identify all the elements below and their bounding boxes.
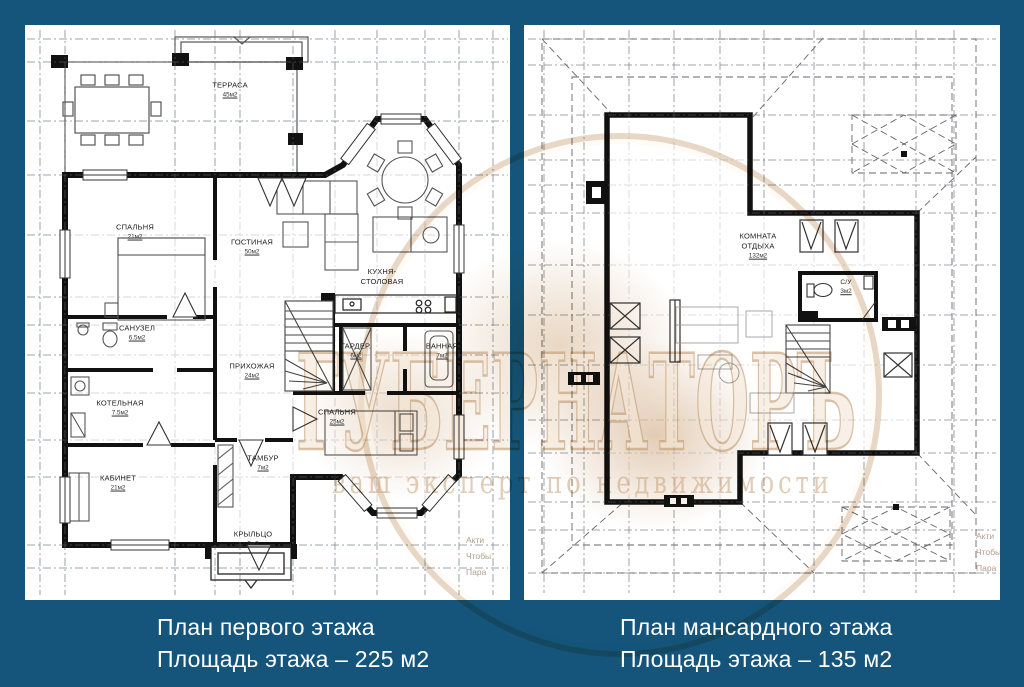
first-floor-plan-drawing xyxy=(25,25,510,600)
attic-staircase xyxy=(786,325,830,393)
first-floor-plan-panel: ТЕРРАСА45м2 СПАЛЬНЯ21м2 ГОСТИНАЯ50м2 КУХ… xyxy=(25,25,510,600)
terrace-columns xyxy=(51,53,303,145)
room-label-bathroom: ВАННАЯ7м2 xyxy=(426,342,458,361)
staircase xyxy=(285,301,333,391)
room-label-hallway: ПРИХОЖАЯ24м2 xyxy=(229,362,274,381)
room-label-wc: САНУЗЕЛ6.5м2 xyxy=(119,324,155,343)
attic-floor-plan-drawing xyxy=(524,25,1000,600)
room-label-attic-wc: С/У3м2 xyxy=(840,279,851,297)
corner-note: Акти Чтобы Пара xyxy=(466,532,491,580)
room-label-boiler-room: КОТЕЛЬНАЯ7.5м2 xyxy=(96,399,143,418)
caption-first-floor: План первого этажа Площадь этажа – 225 м… xyxy=(157,611,429,675)
attic-floor-plan-panel: КОМНАТА ОТДЫХА132м2 С/У3м2 Акти Чтобы Па… xyxy=(524,25,1000,600)
room-label-wardrobe: ГАРДЕР.6м2 xyxy=(341,342,371,361)
caption-first-floor-area: Площадь этажа – 225 м2 xyxy=(157,643,429,675)
page-background: { "colors": { "background": "#15557C", "… xyxy=(0,0,1024,687)
room-label-office: КАБИНЕТ21м2 xyxy=(100,474,136,493)
room-label-vestibule: ТАМБУР7м2 xyxy=(247,454,278,473)
caption-attic-floor: План мансардного этажа Площадь этажа – 1… xyxy=(620,611,893,675)
caption-first-floor-title: План первого этажа xyxy=(157,611,429,643)
room-label-bedroom-1: СПАЛЬНЯ21м2 xyxy=(116,223,154,242)
room-label-terrace: ТЕРРАСА45м2 xyxy=(212,81,248,100)
corner-note: Акти Чтобы Пара xyxy=(976,528,1000,576)
room-label-porch: КРЫЛЬЦО5м2 xyxy=(234,530,272,549)
room-label-living-room: ГОСТИНАЯ50м2 xyxy=(231,238,273,257)
attic-bathroom xyxy=(800,273,876,320)
room-label-kitchen-dining: КУХНЯ-СТОЛОВАЯ xyxy=(351,267,413,288)
caption-attic-floor-area: Площадь этажа – 135 м2 xyxy=(620,643,893,675)
caption-attic-floor-title: План мансардного этажа xyxy=(620,611,893,643)
room-label-lounge: КОМНАТА ОТДЫХА132м2 xyxy=(727,232,789,261)
room-label-bedroom-2: СПАЛЬНЯ25м2 xyxy=(318,408,356,427)
